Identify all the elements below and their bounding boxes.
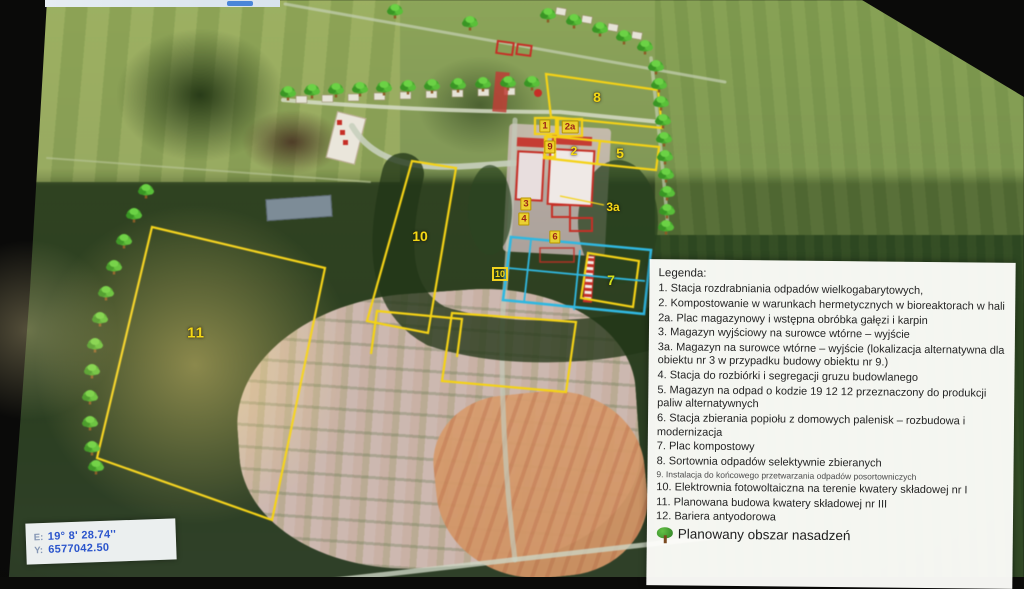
- coordinate-e-label: E:: [34, 532, 48, 543]
- odour-barrier: [583, 256, 594, 302]
- legend-item-3a: 3a. Magazyn na surowce wtórne – wyjście …: [658, 341, 1005, 372]
- map-label-8: 8: [593, 89, 601, 105]
- coordinate-y-value: 6577042.50: [48, 542, 110, 556]
- map-label-11: 11: [187, 325, 205, 342]
- area-11-outline: [97, 227, 325, 520]
- map-label-3a: 3a: [606, 200, 619, 214]
- window-edge-strip: [45, 0, 280, 7]
- legend-item-6: 6. Stacja zbierania popiołu z domowych p…: [657, 412, 1004, 443]
- map-label-1: 1: [539, 120, 550, 133]
- legend-title: Legenda:: [658, 266, 1005, 284]
- legend-item-12: 12. Bariera antyodorowa: [656, 510, 1003, 527]
- map-label-4: 4: [518, 213, 529, 226]
- projected-site-plan-photo: 8 1 2a 9 2 5 3a 3 4 6 7 10 10 11 Legenda…: [0, 0, 1024, 589]
- map-label-2: 2: [571, 144, 578, 158]
- map-label-5: 5: [616, 145, 624, 161]
- map-label-9: 9: [544, 141, 555, 154]
- map-label-6: 6: [549, 231, 560, 244]
- legend-footer-label: Planowany obszar nasadzeń: [678, 527, 851, 546]
- coordinate-readout: E: 19° 8' 28.74'' Y: 6577042.50: [25, 518, 176, 564]
- map-label-2a: 2a: [562, 121, 579, 134]
- map-label-3: 3: [520, 198, 531, 211]
- tree-icon: [656, 526, 674, 544]
- map-label-10: 10: [412, 228, 428, 244]
- window-edge-accent: [227, 1, 253, 6]
- legend-panel: Legenda: 1. Stacja rozdrabniania odpadów…: [646, 259, 1015, 589]
- map-label-10-marker: 10: [492, 267, 508, 281]
- legend-item-5: 5. Magazyn na odpad o kodzie 19 12 12 pr…: [657, 384, 1004, 415]
- legend-footer: Planowany obszar nasadzeń: [656, 526, 1003, 548]
- coordinate-e-value: 19° 8' 28.74'': [48, 528, 117, 542]
- map-label-7: 7: [607, 272, 615, 288]
- coordinate-y-label: Y:: [34, 545, 48, 556]
